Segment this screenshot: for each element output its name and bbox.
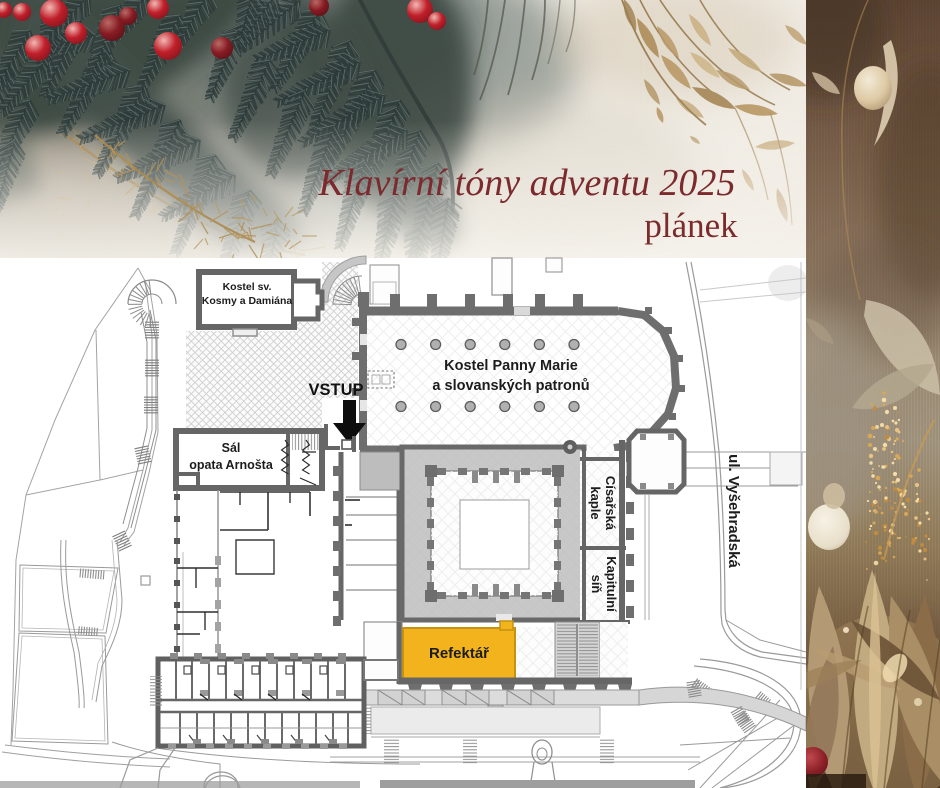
- svg-text:a slovanských patronů: a slovanských patronů: [432, 378, 589, 394]
- svg-text:opata Arnošta: opata Arnošta: [189, 458, 274, 472]
- svg-text:Kostel sv.: Kostel sv.: [223, 281, 272, 293]
- svg-text:Kosmy a Damiána: Kosmy a Damiána: [202, 295, 293, 307]
- svg-text:síň: síň: [589, 575, 604, 594]
- svg-text:ul. Vyšehradská: ul. Vyšehradská: [725, 454, 742, 568]
- svg-text:Refektář: Refektář: [429, 645, 489, 662]
- svg-text:Císařská: Císařská: [603, 476, 618, 531]
- svg-text:Kostel Panny Marie: Kostel Panny Marie: [444, 358, 578, 374]
- svg-text:plánek: plánek: [644, 206, 738, 245]
- svg-text:VSTUP: VSTUP: [308, 381, 363, 399]
- svg-text:kaple: kaple: [588, 486, 603, 519]
- svg-text:Sál: Sál: [222, 441, 241, 455]
- svg-text:Kapitulní: Kapitulní: [604, 556, 619, 612]
- svg-text:Klavírní tóny adventu 2025: Klavírní tóny adventu 2025: [318, 162, 736, 204]
